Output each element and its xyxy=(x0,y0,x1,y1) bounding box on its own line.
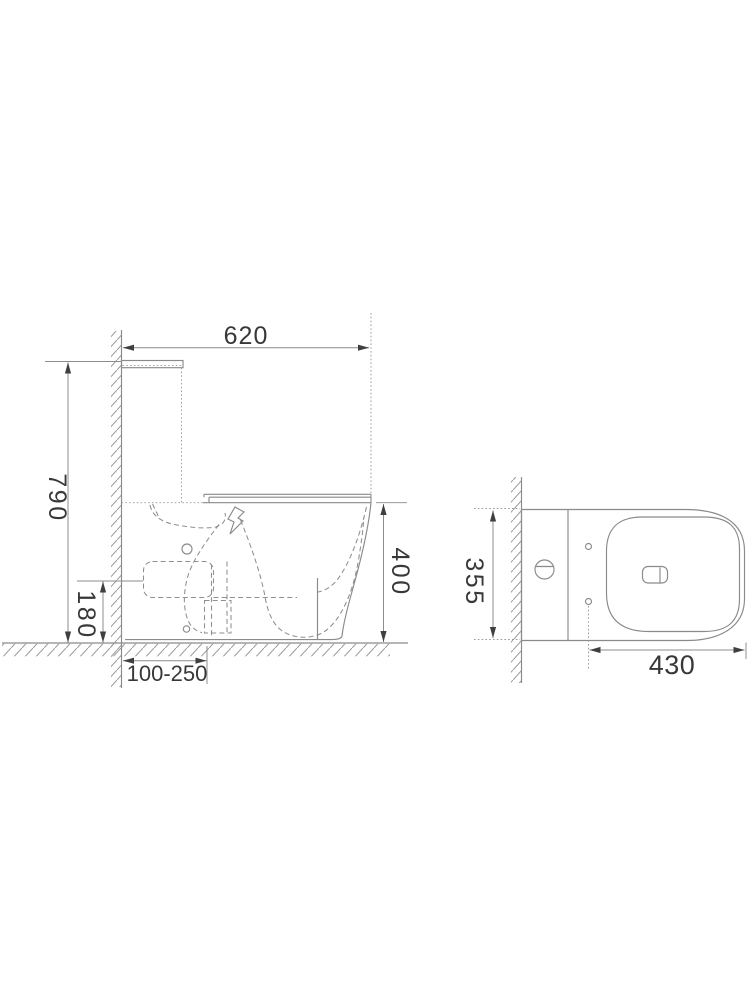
hinge-pivot-hole xyxy=(182,544,192,554)
dim-label-790: 790 xyxy=(43,473,71,522)
dimension-430-length: 430 xyxy=(589,606,747,680)
dim-label-100-250: 100-250 xyxy=(127,661,208,686)
wall-outlet-pipe-dashed xyxy=(144,562,214,598)
floor-hatch xyxy=(2,644,390,657)
bowl-profile-side xyxy=(125,503,371,640)
sump-outlet-plan xyxy=(643,567,668,584)
technical-drawing-page: 620 790 180 400 xyxy=(0,0,750,1000)
fixing-hole xyxy=(183,626,189,632)
flush-button-plan xyxy=(535,560,554,579)
dimension-180-outlet-height: 180 xyxy=(72,581,143,643)
dimension-620-width: 620 xyxy=(123,313,371,502)
toilet-body-plan xyxy=(522,510,745,641)
seat-and-rim-side xyxy=(122,494,372,502)
toilet-dimension-drawing: 620 790 180 400 xyxy=(0,0,750,1000)
dim-label-355: 355 xyxy=(460,557,488,606)
cistern-side xyxy=(122,361,184,503)
seat-bolt-hole-top xyxy=(586,544,592,550)
dim-label-430: 430 xyxy=(649,650,696,680)
side-elevation-view: 620 790 180 400 xyxy=(2,313,414,688)
wall-hatch-plan xyxy=(511,477,522,683)
seat-opening-plan xyxy=(607,517,740,632)
dim-label-620: 620 xyxy=(224,322,269,350)
seat-bolt-hole-bottom xyxy=(586,599,592,605)
plan-view: 355 430 xyxy=(460,477,746,683)
seat-hinge-bracket xyxy=(228,507,244,534)
wall-hatch-side xyxy=(111,331,122,687)
internal-trapway-dashed xyxy=(144,504,367,637)
dim-label-180: 180 xyxy=(72,590,100,639)
dim-label-400: 400 xyxy=(386,547,414,596)
dimension-400-bowl-height: 400 xyxy=(376,503,414,642)
